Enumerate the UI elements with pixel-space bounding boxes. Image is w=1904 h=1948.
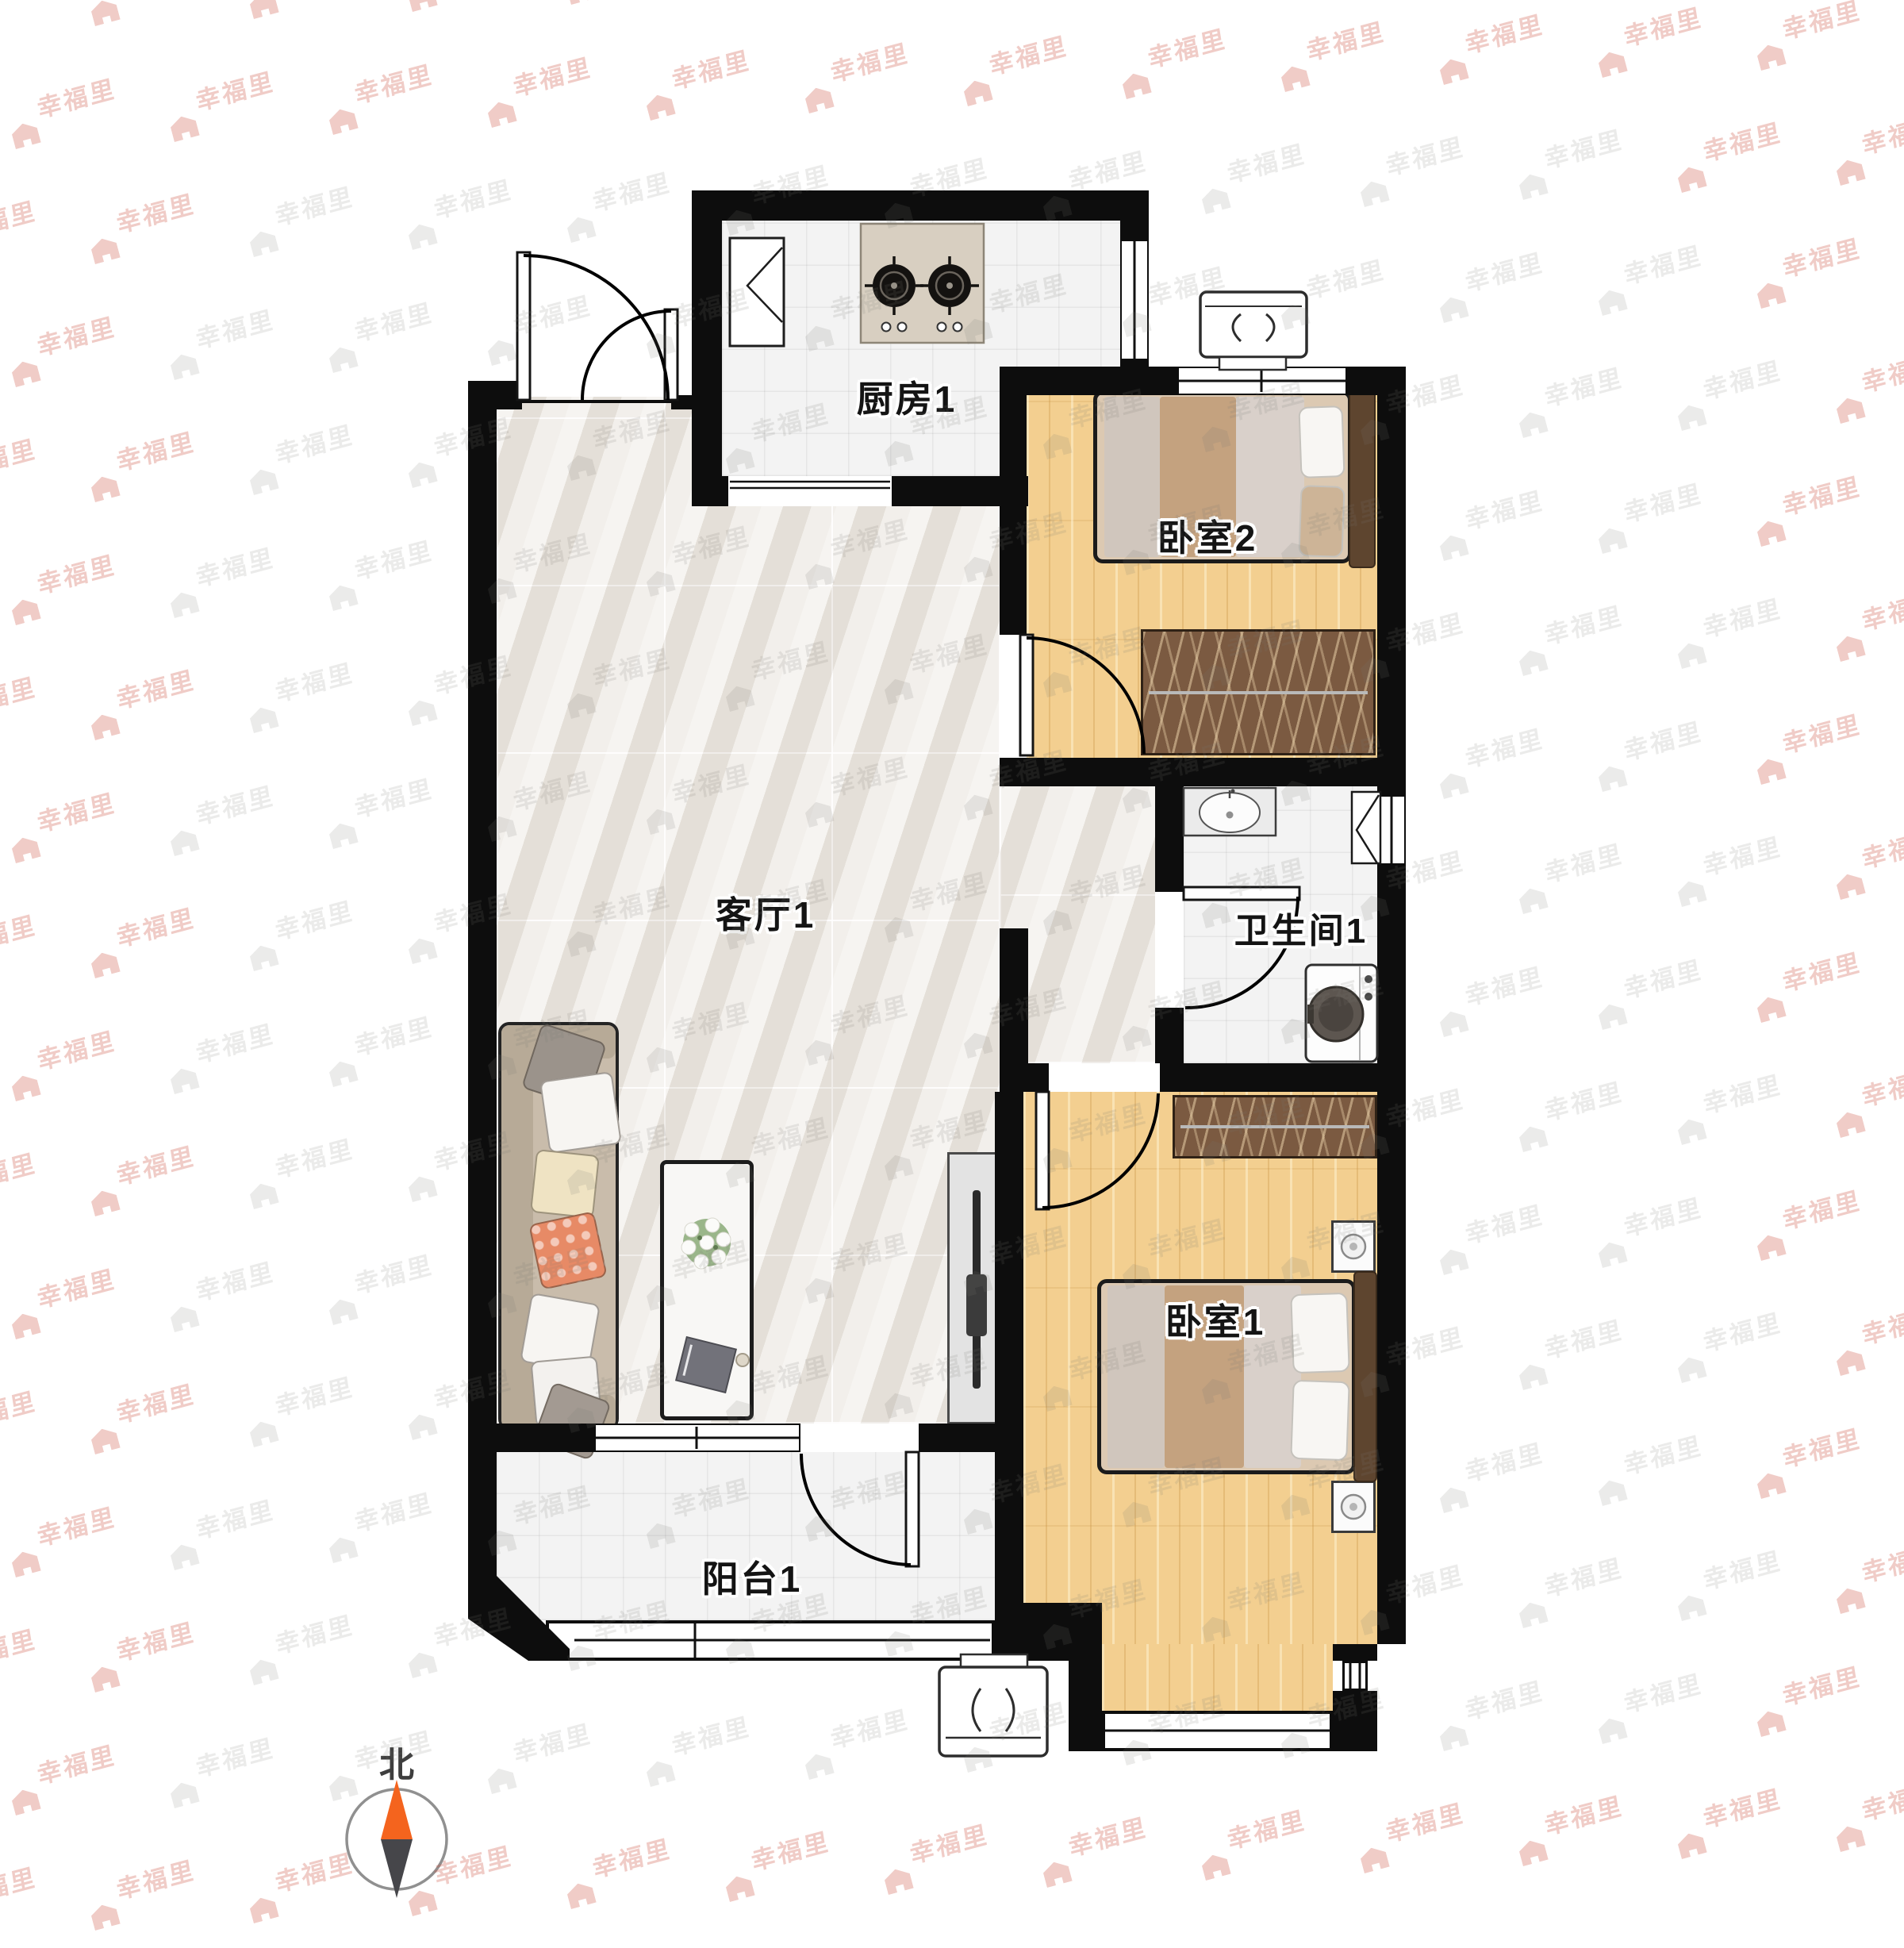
watermark-text: 幸福里: [193, 1013, 277, 1070]
watermark: 幸福里: [320, 48, 466, 144]
watermark-text: 幸福里: [589, 1828, 674, 1885]
watermark: 幸福里: [161, 1008, 308, 1104]
nightstand: [1331, 1481, 1376, 1533]
watermark-text: 幸福里: [351, 530, 436, 586]
watermark-text: 幸福里: [272, 414, 356, 471]
watermark-text: 幸福里: [510, 285, 594, 341]
watermark: 幸福里: [82, 416, 228, 512]
watermark-house-icon: [89, 1188, 120, 1217]
kitchen-passage-threshold: [728, 476, 892, 506]
watermark-text: 幸福里: [34, 1020, 118, 1077]
watermark-house-icon: [89, 712, 120, 741]
watermark: 幸福里: [478, 1708, 625, 1804]
watermark-text: 幸福里: [351, 54, 436, 110]
watermark-text: 幸福里: [1541, 595, 1626, 651]
watermark-text: 幸福里: [1700, 1540, 1784, 1596]
compass-north-label: 北: [379, 1736, 414, 1787]
watermark-house-icon: [565, 1881, 596, 1910]
watermark-house-icon: [1517, 1838, 1548, 1867]
door-opening: [1155, 892, 1184, 1008]
watermark-house-icon: [644, 1758, 675, 1788]
watermark-house-icon: [406, 459, 437, 489]
watermark-text: 幸福里: [1700, 588, 1784, 644]
watermark: 幸福里: [1589, 943, 1736, 1039]
wall: [919, 1424, 1000, 1452]
watermark: 幸福里: [82, 1606, 228, 1702]
watermark-text: 幸福里: [0, 667, 39, 723]
watermark: 幸福里: [1748, 222, 1894, 318]
watermark-text: 幸福里: [272, 176, 356, 232]
watermark-house-icon: [89, 0, 120, 26]
watermark-house-icon: [1834, 871, 1865, 901]
watermark-text: 幸福里: [1621, 1187, 1705, 1243]
watermark-text: 幸福里: [1779, 1180, 1864, 1236]
watermark-house-icon: [168, 1304, 199, 1333]
watermark-text: 幸福里: [1145, 256, 1229, 313]
watermark-house-icon: [406, 697, 437, 727]
watermark-text: 幸福里: [510, 1713, 594, 1769]
bed-pillow: [1290, 1293, 1349, 1374]
watermark: 幸福里: [637, 34, 784, 130]
watermark: 幸福里: [716, 1815, 863, 1911]
watermark-text: 幸福里: [1859, 1771, 1904, 1827]
watermark-house-icon: [89, 236, 120, 265]
watermark-house-icon: [1676, 402, 1706, 432]
room-label-kitchen: 厨房1: [857, 371, 958, 423]
watermark: 幸福里: [0, 661, 69, 757]
watermark: 幸福里: [1748, 698, 1894, 794]
watermark-text: 幸福里: [34, 782, 118, 839]
watermark: 幸福里: [1589, 467, 1736, 563]
watermark-house-icon: [248, 1181, 278, 1210]
watermark: 幸福里: [1589, 229, 1736, 325]
watermark: 幸福里: [478, 279, 625, 375]
watermark-house-icon: [89, 1426, 120, 1455]
wardrobe: [1141, 629, 1376, 755]
watermark: 幸福里: [1510, 1542, 1656, 1638]
watermark-house-icon: [327, 1773, 358, 1802]
watermark-house-icon: [1676, 1593, 1706, 1622]
watermark-house-icon: [1596, 287, 1627, 317]
watermark-text: 幸福里: [1700, 826, 1784, 882]
bed-pillow: [1298, 405, 1345, 478]
watermark-text: 幸福里: [193, 61, 277, 117]
window: [1120, 240, 1149, 360]
watermark-house-icon: [10, 359, 40, 388]
watermark: 幸福里: [240, 647, 387, 743]
watermark-text: 幸福里: [1541, 119, 1626, 175]
watermark-house-icon: [10, 1787, 40, 1816]
wall: [1155, 1008, 1184, 1063]
window: [594, 1424, 800, 1452]
door-swing-arc: [582, 311, 671, 400]
watermark-text: 幸福里: [351, 1244, 436, 1301]
watermark-text: 幸福里: [272, 1128, 356, 1185]
watermark-house-icon: [1755, 42, 1786, 71]
watermark: 幸福里: [1272, 6, 1418, 102]
watermark-text: 幸福里: [1541, 1071, 1626, 1128]
watermark: 幸福里: [1430, 951, 1577, 1047]
watermark: 幸福里: [1510, 113, 1656, 209]
watermark: 幸福里: [1589, 1420, 1736, 1516]
watermark-text: 幸福里: [272, 1842, 356, 1899]
watermark: 幸福里: [161, 294, 308, 390]
watermark-house-icon: [168, 113, 199, 143]
watermark-text: 幸福里: [1621, 473, 1705, 529]
air-conditioner-icon: [1200, 292, 1307, 370]
watermark-text: 幸福里: [1779, 1418, 1864, 1474]
watermark: 幸福里: [1748, 0, 1894, 81]
watermark-text: 幸福里: [1859, 1057, 1904, 1113]
watermark-house-icon: [1358, 1845, 1389, 1874]
watermark: 幸福里: [1430, 1665, 1577, 1761]
wall: [1000, 758, 1406, 786]
watermark-house-icon: [1596, 763, 1627, 793]
watermark-house-icon: [1438, 770, 1468, 800]
watermark-house-icon: [1120, 71, 1151, 100]
watermark-house-icon: [89, 474, 120, 503]
watermark-text: 幸福里: [1462, 480, 1546, 536]
watermark-house-icon: [1517, 1124, 1548, 1153]
watermark: 幸福里: [1351, 1787, 1498, 1883]
bedroom1-bay-floor: [1102, 1644, 1333, 1711]
watermark: 幸福里: [320, 1477, 466, 1573]
south-needle-icon: [381, 1839, 413, 1898]
watermark: 幸福里: [240, 1599, 387, 1695]
watermark: 幸福里: [1668, 1059, 1815, 1155]
watermark: 幸福里: [320, 1001, 466, 1097]
watermark-house-icon: [248, 943, 278, 972]
door-opening: [800, 1424, 919, 1452]
watermark-text: 幸福里: [1779, 0, 1864, 46]
watermark-house-icon: [327, 1535, 358, 1564]
watermark-text: 幸福里: [0, 190, 39, 247]
watermark-text: 幸福里: [986, 1692, 1070, 1748]
watermark-text: 幸福里: [1541, 1547, 1626, 1604]
watermark-text: 幸福里: [0, 428, 39, 485]
watermark-house-icon: [1676, 1831, 1706, 1860]
watermark-house-icon: [1755, 1232, 1786, 1262]
watermark: 幸福里: [1510, 352, 1656, 448]
watermark-house-icon: [406, 1650, 437, 1679]
watermark-house-icon: [1438, 532, 1468, 562]
watermark-house-icon: [1755, 1470, 1786, 1500]
watermark-text: 幸福里: [431, 169, 515, 225]
watermark-text: 幸福里: [431, 1835, 515, 1892]
watermark-text: 幸福里: [1145, 18, 1229, 75]
watermark-text: 幸福里: [1462, 1432, 1546, 1489]
watermark-text: 幸福里: [907, 1814, 991, 1870]
watermark: 幸福里: [1827, 575, 1904, 671]
watermark: 幸福里: [1192, 128, 1339, 224]
watermark-house-icon: [327, 1297, 358, 1326]
air-conditioner-icon: [939, 1654, 1047, 1756]
watermark-text: 幸福里: [1462, 1670, 1546, 1727]
watermark-house-icon: [248, 1895, 278, 1924]
throw-pillow: [530, 1149, 600, 1219]
watermark-text: 幸福里: [1859, 1295, 1904, 1351]
watermark: 幸福里: [320, 286, 466, 382]
watermark-text: 幸福里: [589, 162, 674, 218]
watermark-text: 幸福里: [193, 299, 277, 355]
room-label-bathroom: 卫生间1: [1234, 902, 1368, 953]
watermark: 幸福里: [320, 763, 466, 859]
watermark-text: 幸福里: [1383, 126, 1467, 183]
watermark: 幸福里: [0, 1851, 69, 1947]
watermark-text: 幸福里: [0, 0, 39, 9]
throw-pillow: [528, 1211, 608, 1290]
watermark-house-icon: [406, 936, 437, 965]
room-label-living: 客厅1: [716, 886, 816, 939]
watermark-house-icon: [327, 106, 358, 136]
watermark-house-icon: [1755, 518, 1786, 548]
watermark-house-icon: [1755, 1708, 1786, 1738]
room-label-balcony: 阳台1: [702, 1550, 803, 1603]
watermark-house-icon: [565, 214, 596, 244]
watermark-house-icon: [10, 121, 40, 150]
watermark-text: 幸福里: [193, 775, 277, 832]
watermark-house-icon: [1358, 179, 1389, 208]
watermark: 幸福里: [0, 0, 69, 44]
door-swing-arc: [524, 256, 668, 400]
watermark-text: 幸福里: [1621, 1663, 1705, 1719]
watermark-house-icon: [1200, 186, 1230, 215]
watermark-house-icon: [406, 1412, 437, 1441]
watermark-house-icon: [406, 221, 437, 251]
watermark-house-icon: [10, 1311, 40, 1340]
watermark: 幸福里: [1748, 1412, 1894, 1508]
watermark-house-icon: [1517, 886, 1548, 915]
watermark-text: 幸福里: [272, 652, 356, 709]
watermark: 幸福里: [1034, 1801, 1180, 1897]
watermark-text: 幸福里: [272, 1366, 356, 1423]
window: [1177, 367, 1347, 395]
watermark-house-icon: [1755, 994, 1786, 1024]
watermark: 幸福里: [399, 1830, 546, 1926]
watermark: 幸福里: [1827, 1527, 1904, 1623]
watermark-house-icon: [1834, 1109, 1865, 1139]
wall: [692, 190, 1149, 221]
watermark-text: 幸福里: [827, 1699, 912, 1755]
watermark-house-icon: [168, 1542, 199, 1571]
watermark-house-icon: [248, 0, 278, 19]
watermark-text: 幸福里: [1700, 1064, 1784, 1120]
watermark-text: 幸福里: [0, 1619, 39, 1675]
watermark-house-icon: [1676, 878, 1706, 908]
bed-pillow: [1290, 1380, 1349, 1461]
watermark: 幸福里: [1827, 1289, 1904, 1385]
wall: [468, 381, 497, 1424]
wall: [1333, 1644, 1377, 1661]
watermark-house-icon: [1438, 1247, 1468, 1276]
watermark-house-icon: [1834, 395, 1865, 425]
watermark-house-icon: [89, 1902, 120, 1931]
watermark: 幸福里: [2, 1015, 149, 1111]
wall: [1155, 786, 1184, 892]
bed-blanket: [1104, 397, 1160, 557]
watermark-house-icon: [1438, 1485, 1468, 1514]
wall: [1000, 1063, 1049, 1092]
watermark: 幸福里: [1668, 582, 1815, 678]
watermark: 幸福里: [0, 423, 69, 519]
watermark-text: 幸福里: [1700, 350, 1784, 406]
wall: [1000, 395, 1027, 635]
watermark-house-icon: [644, 330, 675, 359]
watermark-house-icon: [1517, 647, 1548, 677]
watermark-house-icon: [1517, 171, 1548, 201]
wall: [1120, 190, 1149, 241]
watermark-text: 幸福里: [1541, 1309, 1626, 1366]
watermark: 幸福里: [161, 1722, 308, 1818]
watermark-house-icon: [1755, 280, 1786, 309]
watermark-text: 幸福里: [1383, 1792, 1467, 1849]
watermark-text: 幸福里: [1700, 1302, 1784, 1358]
watermark-house-icon: [1438, 1009, 1468, 1038]
watermark-house-icon: [168, 352, 199, 381]
watermark-text: 幸福里: [34, 1497, 118, 1553]
watermark-house-icon: [565, 0, 596, 5]
watermark-house-icon: [1834, 633, 1865, 663]
watermark-house-icon: [1834, 1347, 1865, 1377]
watermark-house-icon: [1596, 49, 1627, 79]
watermark: 幸福里: [1827, 337, 1904, 433]
watermark: 幸福里: [240, 0, 387, 29]
wall: [1160, 1063, 1406, 1092]
door-leaf: [517, 252, 530, 400]
watermark-house-icon: [1834, 1823, 1865, 1853]
watermark: 幸福里: [82, 892, 228, 988]
floor-plan-page: { "watermark": { "text": "幸福里", "gray_co…: [0, 0, 1904, 1904]
watermark-house-icon: [486, 99, 516, 129]
room-label-bedroom2: 卧室2: [1157, 509, 1258, 562]
watermark-house-icon: [248, 1657, 278, 1686]
watermark-text: 幸福里: [113, 421, 198, 478]
watermark: 幸福里: [558, 0, 704, 15]
bay-window: [1102, 1711, 1333, 1751]
watermark: 幸福里: [2, 301, 149, 397]
watermark-text: 幸福里: [1541, 357, 1626, 413]
watermark: 幸福里: [320, 524, 466, 621]
watermark-house-icon: [168, 1066, 199, 1095]
compass: [347, 1780, 447, 1898]
watermark: 幸福里: [82, 654, 228, 750]
watermark-text: 幸福里: [272, 890, 356, 947]
watermark-text: 幸福里: [1541, 1785, 1626, 1842]
watermark-house-icon: [248, 1419, 278, 1448]
door-opening: [1000, 635, 1027, 758]
watermark: 幸福里: [1589, 1658, 1736, 1754]
watermark-house-icon: [1041, 1859, 1072, 1888]
watermark-house-icon: [10, 1073, 40, 1102]
watermark: 幸福里: [796, 27, 942, 123]
watermark-text: 幸福里: [0, 1857, 39, 1913]
watermark: 幸福里: [2, 63, 149, 159]
watermark: 幸福里: [1827, 813, 1904, 909]
watermark: 幸福里: [954, 20, 1101, 116]
watermark-house-icon: [10, 597, 40, 626]
watermark-text: 幸福里: [113, 1374, 198, 1430]
watermark: 幸福里: [1430, 475, 1577, 571]
watermark: 幸福里: [240, 409, 387, 505]
wall: [1000, 367, 1177, 395]
wall: [1069, 1644, 1102, 1751]
watermark: 幸福里: [1668, 1297, 1815, 1393]
watermark: 幸福里: [1430, 236, 1577, 332]
watermark-house-icon: [168, 590, 199, 619]
watermark: 幸福里: [558, 1823, 704, 1919]
watermark-house-icon: [89, 1664, 120, 1693]
watermark-house-icon: [1438, 294, 1468, 324]
wall: [1333, 1691, 1377, 1751]
watermark: 幸福里: [161, 1246, 308, 1342]
watermark-house-icon: [327, 1059, 358, 1088]
watermark-house-icon: [882, 1866, 913, 1896]
room-label-bedroom1: 卧室1: [1165, 1293, 1266, 1346]
watermark-text: 幸福里: [34, 544, 118, 601]
watermark-house-icon: [327, 344, 358, 374]
watermark-house-icon: [1438, 56, 1468, 86]
watermark-house-icon: [248, 467, 278, 496]
watermark-house-icon: [1279, 63, 1310, 93]
watermark-house-icon: [644, 92, 675, 121]
watermark: 幸福里: [478, 41, 625, 137]
window: [1342, 1661, 1368, 1691]
bed-pillow: [1298, 485, 1345, 558]
watermark: 幸福里: [399, 0, 546, 22]
bed-headboard: [1349, 386, 1376, 568]
wardrobe: [1173, 1095, 1377, 1158]
watermark-text: 幸福里: [1859, 1533, 1904, 1589]
watermark-text: 幸福里: [1859, 343, 1904, 399]
watermark: 幸福里: [1748, 936, 1894, 1032]
watermark: 幸福里: [82, 1130, 228, 1226]
watermark: 幸福里: [240, 1837, 387, 1933]
watermark-text: 幸福里: [113, 1135, 198, 1192]
watermark: 幸福里: [1748, 1650, 1894, 1746]
watermark-text: 幸福里: [1779, 942, 1864, 998]
watermark-house-icon: [327, 582, 358, 612]
tv-mount: [966, 1274, 987, 1336]
watermark: 幸福里: [0, 1613, 69, 1709]
watermark: 幸福里: [0, 185, 69, 281]
watermark-text: 幸福里: [1859, 819, 1904, 875]
watermark-text: 幸福里: [748, 1821, 832, 1877]
watermark-text: 幸福里: [34, 68, 118, 125]
watermark-house-icon: [1517, 1362, 1548, 1391]
watermark-house-icon: [1596, 525, 1627, 555]
watermark-house-icon: [168, 1780, 199, 1809]
wall: [468, 1452, 497, 1579]
watermark-text: 幸福里: [1779, 704, 1864, 760]
watermark-text: 幸福里: [1859, 581, 1904, 637]
watermark-house-icon: [248, 229, 278, 258]
watermark: 幸福里: [240, 885, 387, 981]
watermark: 幸福里: [1430, 713, 1577, 809]
watermark-text: 幸福里: [1621, 0, 1705, 53]
watermark-text: 幸福里: [0, 905, 39, 961]
wall: [468, 381, 522, 409]
watermark: 幸福里: [82, 1368, 228, 1464]
watermark-house-icon: [486, 337, 516, 367]
watermark: 幸福里: [1668, 1773, 1815, 1869]
watermark-house-icon: [1596, 1001, 1627, 1031]
watermark-text: 幸福里: [351, 1006, 436, 1062]
watermark-house-icon: [89, 950, 120, 979]
watermark-text: 幸福里: [1303, 11, 1388, 67]
watermark-text: 幸福里: [351, 1482, 436, 1539]
watermark-house-icon: [1676, 640, 1706, 670]
watermark: 幸福里: [240, 171, 387, 267]
